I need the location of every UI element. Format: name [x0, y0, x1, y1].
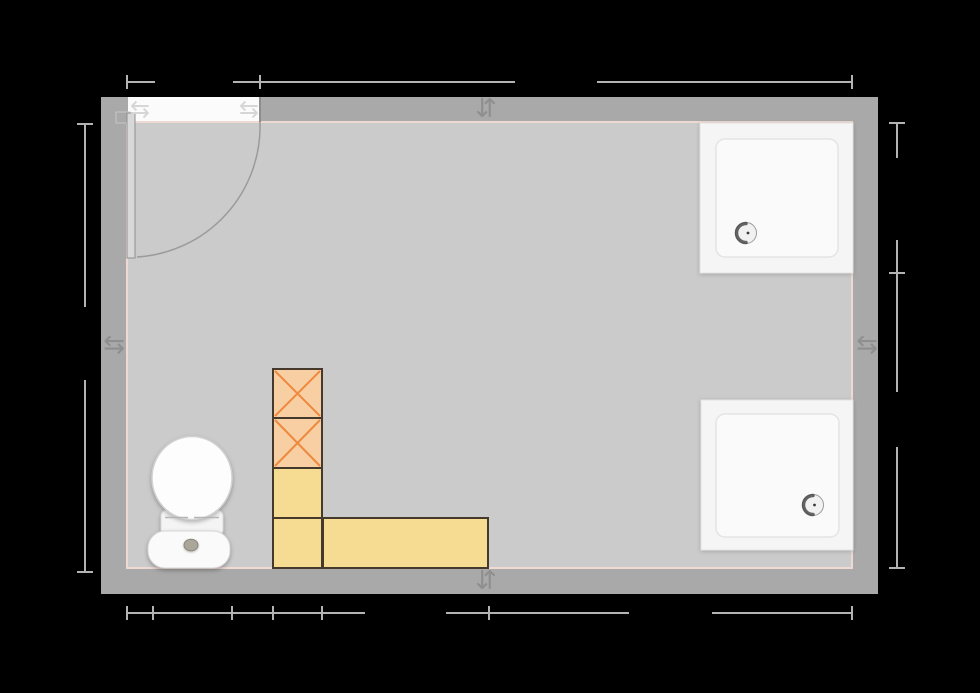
storage-box-yellow-long[interactable]: [323, 518, 488, 568]
shower-drain-dot: [747, 232, 750, 235]
app-background: { "canvas": { "width": 980, "height": 69…: [0, 0, 980, 693]
toilet-lid[interactable]: [152, 437, 232, 520]
wall-direction-indicator-right-icon: ⇆: [856, 330, 878, 360]
flush-button: [184, 539, 198, 551]
wall-direction-indicator-left-icon: ⇆: [103, 330, 125, 360]
door-swap-arrows-left-icon: ⇆: [130, 95, 150, 123]
shower-drain-dot: [813, 504, 816, 507]
wall-direction-indicator-bottom-icon: ⇵: [475, 566, 497, 596]
door-panel[interactable]: [127, 113, 135, 258]
shower-tray-basin: [716, 414, 839, 537]
wall-direction-indicator-top-icon: ⇵: [475, 94, 497, 124]
floor-plan-canvas[interactable]: ⇆⇆⇵⇵⇆⇆: [0, 0, 980, 693]
door-swap-arrows-right-icon: ⇆: [239, 95, 259, 123]
storage-box-yellow-1[interactable]: [273, 468, 322, 518]
storage-box-yellow-2[interactable]: [273, 518, 322, 568]
shower-tray-basin: [716, 139, 838, 257]
